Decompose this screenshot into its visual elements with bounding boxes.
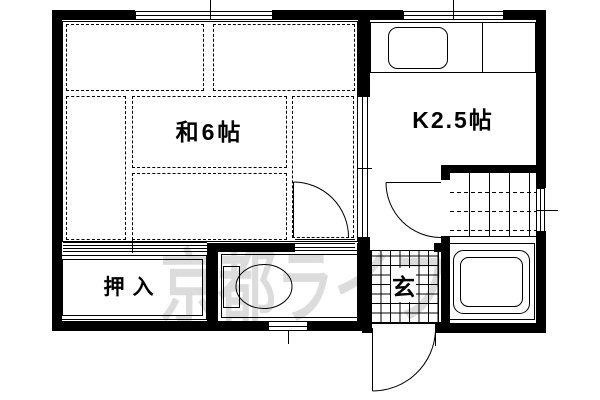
wall-top-left: [52, 10, 135, 20]
tatami-mat: [66, 24, 204, 91]
wall-top-middle: [272, 10, 403, 20]
bath-tile-floor: [450, 173, 536, 237]
wall-bath-top: [441, 165, 536, 173]
top-window-kitchen: [403, 0, 504, 20]
washitsu-label-text: 和6帖: [176, 113, 244, 147]
kitchen-label-text: K2.5帖: [412, 101, 494, 135]
tatami-mat: [292, 96, 354, 238]
wall-bath-bottom: [441, 323, 546, 333]
wall-right-lower: [536, 231, 546, 333]
watermark: 京都ライフ: [160, 249, 450, 330]
tatami-mat: [132, 173, 287, 240]
washitsu-label: 和6帖: [132, 100, 287, 160]
wall-right-upper: [536, 10, 546, 188]
wall-partition-upper: [358, 20, 370, 97]
kitchen-label: K2.5帖: [370, 102, 536, 134]
entrance-door-swing: [373, 328, 436, 391]
top-window-washitsu: [135, 0, 273, 20]
wall-left: [52, 10, 62, 331]
bathtub: [449, 244, 535, 320]
bath-window-right: [536, 188, 558, 232]
tatami-mat: [213, 24, 355, 91]
tatami-mat: [66, 96, 126, 240]
wall-bath-left-upper: [441, 165, 450, 180]
closet-label-text: 押入: [104, 271, 162, 301]
floor-plan: 和6帖 K2.5帖 押入 玄 京都ライフ: [0, 0, 600, 400]
